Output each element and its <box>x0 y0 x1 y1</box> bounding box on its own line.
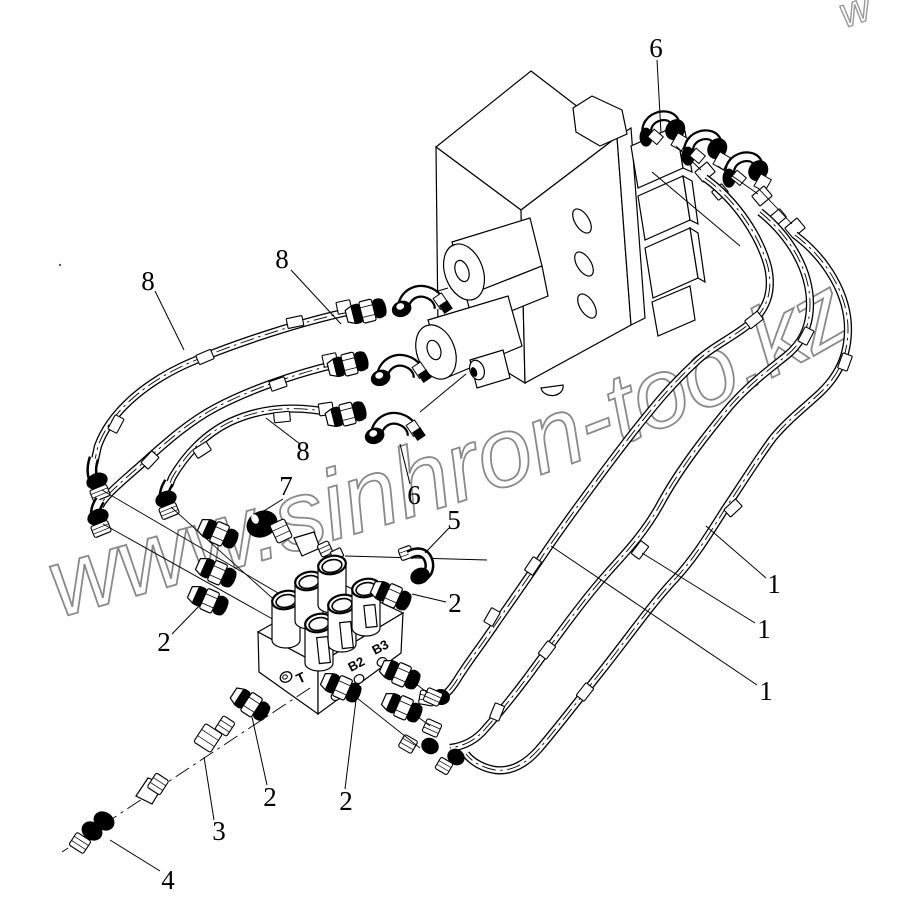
svg-text:4: 4 <box>161 865 175 895</box>
svg-text:7: 7 <box>279 471 293 501</box>
svg-text:5: 5 <box>447 505 461 535</box>
svg-text:8: 8 <box>141 266 155 296</box>
svg-text:2: 2 <box>263 782 277 812</box>
svg-text:1: 1 <box>757 614 771 644</box>
svg-text:6: 6 <box>407 480 421 510</box>
svg-text:2: 2 <box>448 588 462 618</box>
svg-text:2: 2 <box>157 627 171 657</box>
svg-text:1: 1 <box>759 676 773 706</box>
svg-text:8: 8 <box>275 244 289 274</box>
svg-text:2: 2 <box>339 786 353 816</box>
svg-text:3: 3 <box>212 816 226 846</box>
svg-text:1: 1 <box>767 569 781 599</box>
svg-text:8: 8 <box>296 436 310 466</box>
svg-text:6: 6 <box>649 33 663 63</box>
